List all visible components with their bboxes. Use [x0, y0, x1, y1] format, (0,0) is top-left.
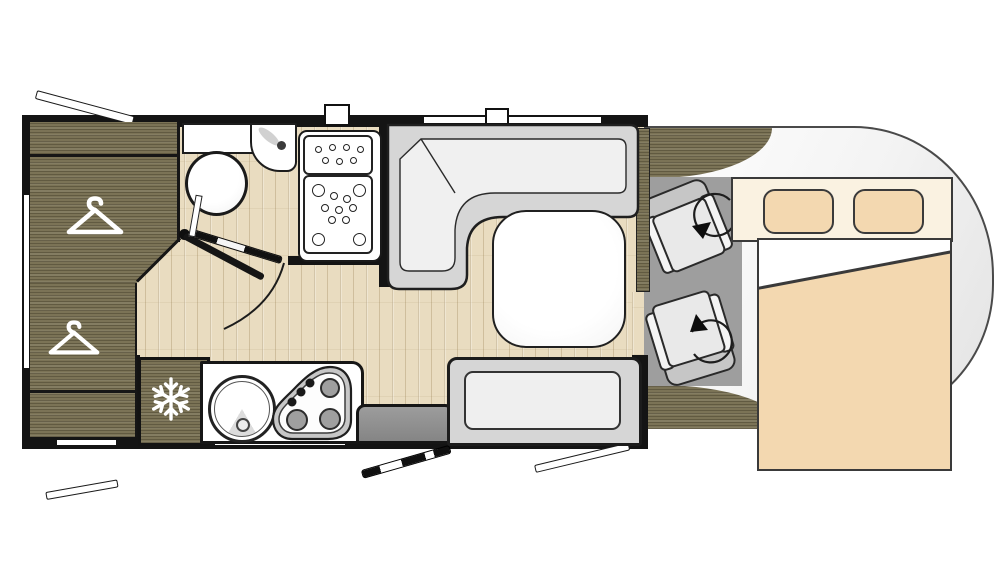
kitchen-sink — [208, 375, 276, 443]
pillow — [853, 189, 924, 234]
bench-cushion — [464, 371, 621, 430]
drop-down-bed — [757, 238, 952, 471]
shower-tray — [298, 130, 382, 262]
burner — [321, 379, 339, 397]
bed-headboard-shelf — [731, 177, 953, 242]
hob-knob — [288, 398, 297, 407]
bed-duvet — [759, 240, 950, 469]
burner — [287, 410, 307, 430]
three-burner-hob — [270, 364, 354, 442]
hanger-icon — [66, 196, 124, 238]
wardrobe-edge — [177, 122, 180, 242]
shower-base-panel — [303, 175, 373, 254]
wardrobe-divider — [30, 154, 180, 157]
dinette-table — [492, 210, 626, 348]
wardrobe-divider — [30, 390, 135, 393]
door-swing-arc — [180, 255, 300, 345]
vanity-shelf — [182, 123, 256, 154]
sink-drain — [236, 418, 250, 432]
shower-upper-panel — [303, 135, 373, 175]
entry-step — [356, 404, 454, 444]
wardrobe-lower — [30, 283, 137, 437]
window-rear-wall — [24, 195, 29, 368]
open-window-flap-rear — [45, 479, 118, 500]
cab-walkway-floor — [632, 292, 644, 355]
window-wardrobe-bottom — [57, 440, 116, 445]
snowflake-icon — [149, 377, 193, 421]
hob-knob — [306, 379, 315, 388]
hob-knob — [297, 388, 306, 397]
pillow — [763, 189, 834, 234]
faucet-dot — [277, 141, 286, 150]
motorhome-floorplan — [0, 0, 1000, 564]
hanger-icon — [48, 320, 100, 358]
side-bench — [447, 357, 642, 446]
burner — [320, 409, 340, 429]
entry-door-leaf — [361, 445, 452, 479]
swivel-arrow-icon — [682, 310, 742, 370]
roof-vent-shower — [324, 104, 350, 126]
